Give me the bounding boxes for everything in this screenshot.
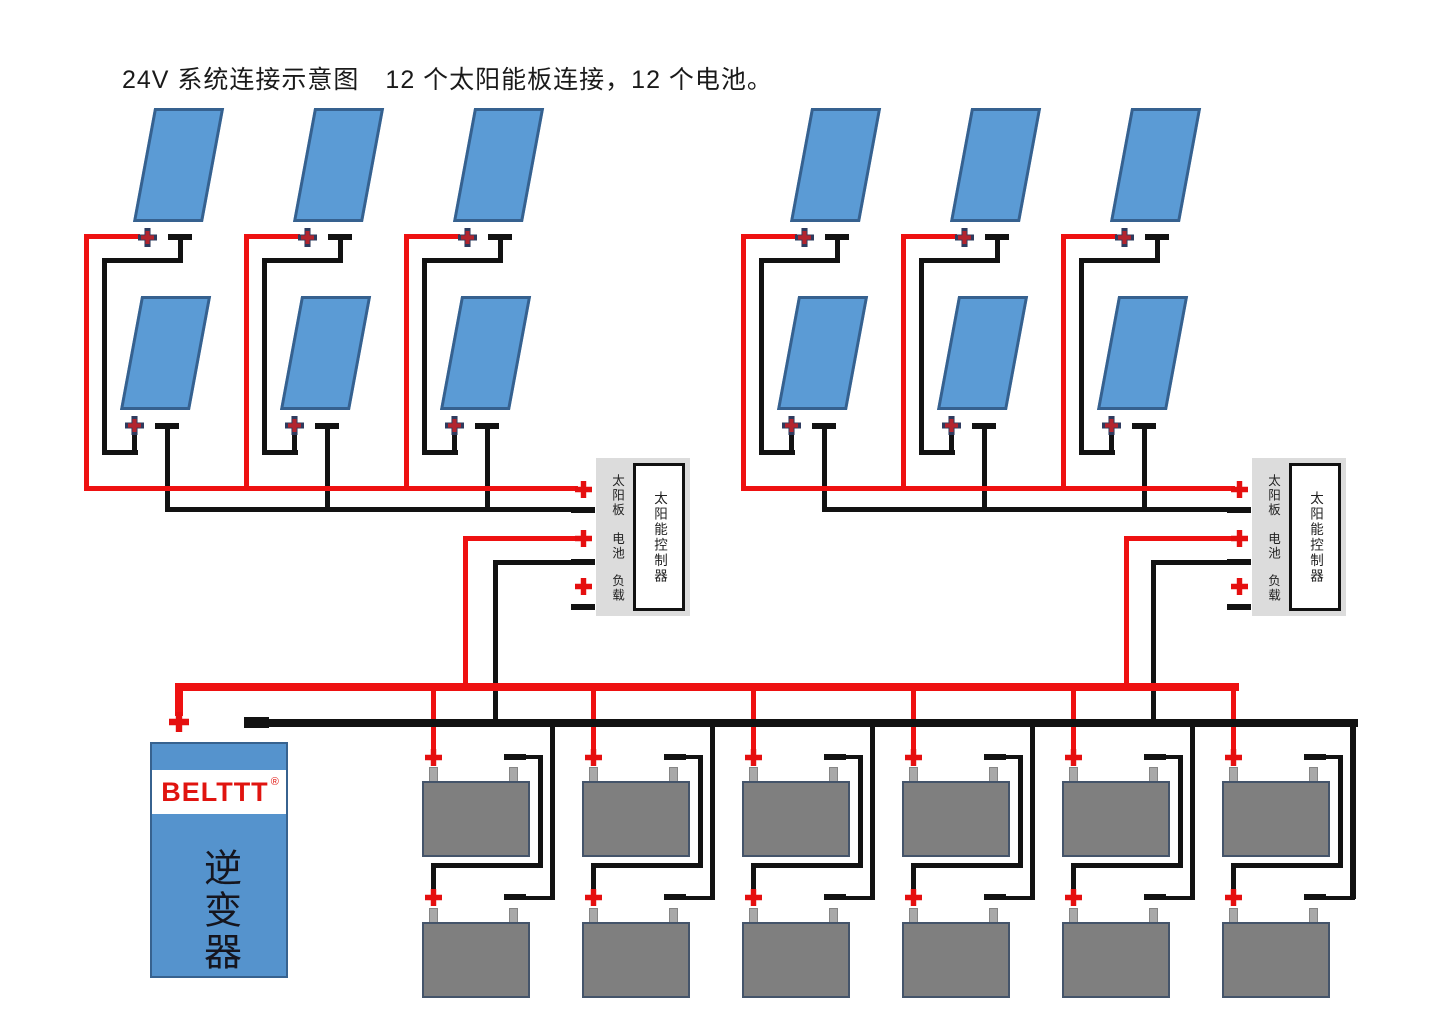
wire-segment bbox=[1231, 863, 1236, 892]
inverter-brand: BELTTT bbox=[161, 777, 268, 808]
main-positive-bus bbox=[175, 683, 1239, 691]
battery-post bbox=[749, 767, 758, 782]
wire-segment bbox=[1350, 727, 1356, 899]
wire-segment bbox=[1151, 560, 1156, 724]
wire-segment bbox=[1338, 755, 1343, 868]
main-negative-bus bbox=[268, 719, 1358, 727]
battery-post bbox=[509, 908, 518, 923]
solar-panel bbox=[293, 108, 384, 222]
solar-panel bbox=[950, 108, 1041, 222]
wire-segment bbox=[684, 896, 715, 900]
wire-segment bbox=[452, 433, 457, 455]
battery-post bbox=[429, 767, 438, 782]
controller-port-label-pv: 太阳板 bbox=[1264, 474, 1283, 518]
wire-segment bbox=[84, 234, 140, 239]
plus-terminal-icon bbox=[1115, 228, 1134, 247]
wire-segment bbox=[858, 755, 863, 868]
plus-terminal-icon bbox=[745, 749, 762, 766]
battery-post bbox=[989, 908, 998, 923]
controller-name: 太阳能控制器 bbox=[649, 491, 669, 584]
wire-segment bbox=[262, 258, 343, 263]
wire-segment bbox=[591, 863, 703, 868]
battery-post bbox=[1229, 767, 1238, 782]
wire-segment bbox=[1079, 258, 1084, 455]
wire-segment bbox=[165, 429, 170, 512]
minus-terminal-icon bbox=[155, 423, 179, 429]
wire-segment bbox=[244, 234, 300, 239]
battery-post bbox=[1309, 908, 1318, 923]
solar-panel bbox=[120, 296, 211, 410]
wire-segment bbox=[870, 727, 875, 899]
solar-panel bbox=[777, 296, 868, 410]
minus-terminal-icon bbox=[984, 894, 1006, 900]
plus-terminal-icon bbox=[1225, 749, 1242, 766]
plus-terminal-icon bbox=[1231, 530, 1248, 547]
wire-segment bbox=[1178, 755, 1183, 868]
battery bbox=[1062, 781, 1170, 857]
battery-post bbox=[1149, 908, 1158, 923]
wire-segment bbox=[1124, 536, 1231, 541]
battery-post bbox=[1069, 908, 1078, 923]
solar-panel bbox=[937, 296, 1028, 410]
wire-segment bbox=[244, 234, 249, 491]
battery bbox=[582, 922, 690, 998]
wire-segment bbox=[911, 863, 916, 892]
battery-post bbox=[589, 908, 598, 923]
plus-terminal-icon bbox=[1065, 889, 1082, 906]
wire-segment bbox=[901, 234, 957, 239]
wire-segment bbox=[132, 433, 137, 455]
plus-terminal-icon bbox=[1231, 578, 1248, 595]
charge-controller: 太阳板 电池 负载 太阳能控制器 bbox=[1252, 458, 1346, 616]
solar-panel bbox=[1097, 296, 1188, 410]
solar-panel bbox=[453, 108, 544, 222]
battery-post bbox=[669, 908, 678, 923]
battery-post bbox=[829, 908, 838, 923]
wire-segment bbox=[822, 429, 827, 512]
wire-segment bbox=[485, 429, 490, 512]
battery bbox=[1222, 922, 1330, 998]
minus-terminal-icon bbox=[571, 604, 595, 610]
wire-segment bbox=[175, 683, 183, 716]
minus-terminal-icon bbox=[1145, 234, 1169, 240]
wire-segment bbox=[759, 258, 764, 455]
wire-segment bbox=[698, 755, 703, 868]
plus-terminal-icon bbox=[285, 416, 304, 435]
battery bbox=[902, 781, 1010, 857]
plus-terminal-icon bbox=[425, 889, 442, 906]
wire-segment bbox=[524, 896, 555, 900]
minus-terminal-icon bbox=[824, 894, 846, 900]
battery bbox=[742, 781, 850, 857]
wire-segment bbox=[759, 258, 840, 263]
inverter-brand-band: BELTTT ® bbox=[152, 770, 286, 814]
wire-segment bbox=[1231, 863, 1343, 868]
minus-terminal-icon bbox=[1227, 604, 1251, 610]
battery-post bbox=[829, 767, 838, 782]
wire-segment bbox=[262, 258, 267, 455]
solar-panel bbox=[440, 296, 531, 410]
battery-post bbox=[1229, 908, 1238, 923]
plus-terminal-icon bbox=[298, 228, 317, 247]
controller-nameplate: 太阳能控制器 bbox=[1289, 463, 1341, 611]
wire-segment bbox=[741, 234, 797, 239]
battery-post bbox=[909, 908, 918, 923]
wire-segment bbox=[1142, 429, 1147, 512]
wire-segment bbox=[901, 234, 906, 491]
wire-segment bbox=[493, 560, 498, 724]
wire-segment bbox=[591, 863, 596, 892]
diagram-title: 24V 系统连接示意图 12 个太阳能板连接，12 个电池。 bbox=[122, 60, 773, 96]
plus-terminal-icon bbox=[782, 416, 801, 435]
wire-segment bbox=[1061, 234, 1066, 491]
inverter: BELTTT ® 逆变器 bbox=[150, 742, 288, 978]
battery-post bbox=[989, 767, 998, 782]
pv-negative-bus-right bbox=[822, 507, 1232, 512]
wire-segment bbox=[1190, 727, 1195, 899]
wire-segment bbox=[982, 429, 987, 512]
battery-post bbox=[1309, 767, 1318, 782]
wire-segment bbox=[1109, 433, 1114, 455]
wire-segment bbox=[431, 863, 436, 892]
pv-negative-bus-left bbox=[165, 507, 578, 512]
wire-segment bbox=[1124, 536, 1129, 687]
wire-segment bbox=[1018, 755, 1023, 868]
plus-terminal-icon bbox=[745, 889, 762, 906]
minus-terminal-icon bbox=[168, 234, 192, 240]
minus-terminal-icon bbox=[1227, 507, 1251, 513]
wiring-diagram: 24V 系统连接示意图 12 个太阳能板连接，12 个电池。 bbox=[0, 0, 1451, 1026]
inverter-label-wrap: 逆变器 bbox=[152, 848, 286, 974]
wire-segment bbox=[789, 433, 794, 455]
minus-terminal-icon bbox=[488, 234, 512, 240]
solar-panel bbox=[1110, 108, 1201, 222]
wire-segment bbox=[325, 429, 330, 512]
battery bbox=[902, 922, 1010, 998]
charge-controller: 太阳板 电池 负载 太阳能控制器 bbox=[596, 458, 690, 616]
minus-terminal-icon bbox=[1144, 754, 1166, 760]
minus-terminal-icon bbox=[475, 423, 499, 429]
registered-trademark-icon: ® bbox=[271, 776, 279, 788]
controller-port-label-pv: 太阳板 bbox=[608, 474, 627, 518]
solar-panel bbox=[790, 108, 881, 222]
wire-segment bbox=[463, 536, 575, 541]
battery bbox=[582, 781, 690, 857]
solar-panel bbox=[280, 296, 371, 410]
wire-segment bbox=[404, 234, 460, 239]
battery-post bbox=[509, 767, 518, 782]
wire-segment bbox=[1079, 258, 1160, 263]
wire-segment bbox=[550, 727, 555, 899]
controller-port-label-battery: 电池 bbox=[1264, 532, 1283, 561]
battery bbox=[422, 922, 530, 998]
battery-post bbox=[589, 767, 598, 782]
minus-terminal-icon bbox=[244, 717, 269, 728]
wire-segment bbox=[1164, 896, 1195, 900]
wire-segment bbox=[463, 536, 468, 687]
plus-terminal-icon bbox=[125, 416, 144, 435]
plus-terminal-icon bbox=[795, 228, 814, 247]
wire-segment bbox=[1071, 863, 1076, 892]
pv-positive-bus-right bbox=[741, 486, 1235, 491]
wire-segment bbox=[1030, 727, 1035, 899]
battery-post bbox=[1149, 767, 1158, 782]
inverter-label: 逆变器 bbox=[192, 848, 247, 974]
plus-terminal-icon bbox=[955, 228, 974, 247]
minus-terminal-icon bbox=[824, 754, 846, 760]
plus-terminal-icon bbox=[425, 749, 442, 766]
plus-terminal-icon bbox=[905, 889, 922, 906]
battery bbox=[1222, 781, 1330, 857]
minus-terminal-icon bbox=[664, 754, 686, 760]
plus-terminal-icon bbox=[1102, 416, 1121, 435]
controller-nameplate: 太阳能控制器 bbox=[633, 463, 685, 611]
plus-terminal-icon bbox=[138, 228, 157, 247]
wire-segment bbox=[422, 258, 427, 455]
battery-post bbox=[669, 767, 678, 782]
wire-segment bbox=[919, 258, 924, 455]
wire-segment bbox=[1071, 863, 1183, 868]
wire-segment bbox=[919, 258, 1000, 263]
minus-terminal-icon bbox=[825, 234, 849, 240]
plus-terminal-icon bbox=[1231, 481, 1248, 498]
plus-terminal-icon bbox=[905, 749, 922, 766]
solar-panel bbox=[133, 108, 224, 222]
wire-segment bbox=[493, 560, 575, 565]
minus-terminal-icon bbox=[1304, 754, 1326, 760]
wire-segment bbox=[1151, 560, 1231, 565]
wire-segment bbox=[751, 863, 756, 892]
minus-terminal-icon bbox=[504, 894, 526, 900]
battery bbox=[422, 781, 530, 857]
minus-terminal-icon bbox=[504, 754, 526, 760]
plus-terminal-icon bbox=[575, 578, 592, 595]
wire-segment bbox=[431, 863, 543, 868]
battery-post bbox=[429, 908, 438, 923]
controller-port-label-load: 负载 bbox=[608, 574, 627, 603]
minus-terminal-icon bbox=[328, 234, 352, 240]
battery-post bbox=[909, 767, 918, 782]
battery bbox=[1062, 922, 1170, 998]
plus-terminal-icon bbox=[445, 416, 464, 435]
minus-terminal-icon bbox=[664, 894, 686, 900]
wire-segment bbox=[102, 258, 107, 455]
wire-segment bbox=[538, 755, 543, 868]
minus-terminal-icon bbox=[1132, 423, 1156, 429]
wire-segment bbox=[1004, 896, 1035, 900]
wire-segment bbox=[710, 727, 715, 899]
controller-port-label-battery: 电池 bbox=[608, 532, 627, 561]
minus-terminal-icon bbox=[812, 423, 836, 429]
minus-terminal-icon bbox=[1144, 894, 1166, 900]
battery-post bbox=[1069, 767, 1078, 782]
controller-port-label-load: 负载 bbox=[1264, 574, 1283, 603]
plus-terminal-icon bbox=[458, 228, 477, 247]
minus-terminal-icon bbox=[984, 754, 1006, 760]
plus-terminal-icon bbox=[1225, 889, 1242, 906]
minus-terminal-icon bbox=[315, 423, 339, 429]
wire-segment bbox=[949, 433, 954, 455]
wire-segment bbox=[1061, 234, 1117, 239]
minus-terminal-icon bbox=[571, 507, 595, 513]
wire-segment bbox=[422, 258, 503, 263]
plus-terminal-icon bbox=[575, 530, 592, 547]
plus-terminal-icon bbox=[942, 416, 961, 435]
wire-segment bbox=[844, 896, 875, 900]
wire-segment bbox=[292, 433, 297, 455]
wire-segment bbox=[1324, 896, 1355, 900]
plus-terminal-icon bbox=[585, 749, 602, 766]
wire-segment bbox=[911, 863, 1023, 868]
minus-terminal-icon bbox=[1304, 894, 1326, 900]
plus-terminal-icon bbox=[585, 889, 602, 906]
wire-segment bbox=[84, 234, 89, 491]
pv-positive-bus-left bbox=[84, 486, 578, 491]
wire-segment bbox=[751, 863, 863, 868]
wire-segment bbox=[741, 234, 746, 491]
plus-terminal-icon bbox=[575, 481, 592, 498]
minus-terminal-icon bbox=[985, 234, 1009, 240]
plus-terminal-icon bbox=[1065, 749, 1082, 766]
battery bbox=[742, 922, 850, 998]
controller-name: 太阳能控制器 bbox=[1305, 491, 1325, 584]
battery-post bbox=[749, 908, 758, 923]
minus-terminal-icon bbox=[972, 423, 996, 429]
wire-segment bbox=[102, 258, 183, 263]
plus-terminal-icon bbox=[169, 712, 189, 732]
wire-segment bbox=[404, 234, 409, 491]
